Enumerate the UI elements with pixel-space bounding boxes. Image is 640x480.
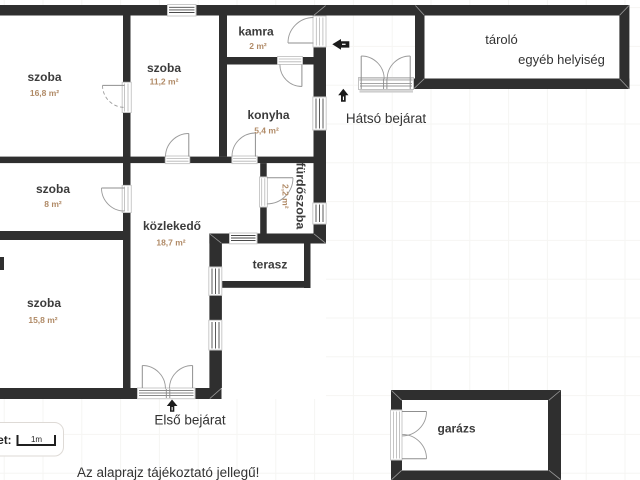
svg-text:szoba: szoba — [27, 70, 61, 84]
svg-text:garázs: garázs — [437, 422, 475, 436]
svg-text:szoba: szoba — [36, 182, 70, 196]
svg-text:18,7 m²: 18,7 m² — [156, 238, 185, 248]
svg-text:15,8 m²: 15,8 m² — [28, 315, 57, 325]
svg-text:8 m²: 8 m² — [44, 199, 62, 209]
svg-text:5,4 m²: 5,4 m² — [254, 126, 279, 136]
svg-text:konyha: konyha — [247, 108, 289, 122]
svg-text:Hátsó bejárat: Hátsó bejárat — [346, 111, 427, 126]
svg-text:11,2 m²: 11,2 m² — [150, 77, 179, 87]
svg-text:1m: 1m — [31, 435, 42, 444]
svg-text:Első bejárat: Első bejárat — [154, 413, 226, 428]
svg-text:2,2 m²: 2,2 m² — [281, 184, 291, 209]
svg-text:Méret:: Méret: — [0, 435, 12, 447]
svg-text:tároló: tároló — [485, 32, 518, 47]
svg-text:szoba: szoba — [27, 296, 61, 310]
svg-text:Az alaprajz tájékoztató jelleg: Az alaprajz tájékoztató jellegű! — [77, 465, 259, 480]
svg-text:2 m²: 2 m² — [249, 41, 267, 51]
svg-text:fürdőszoba: fürdőszoba — [294, 163, 308, 230]
svg-text:szoba: szoba — [147, 61, 181, 75]
svg-text:közlekedő: közlekedő — [143, 219, 201, 233]
svg-text:terasz: terasz — [253, 258, 288, 272]
svg-text:egyéb helyiség: egyéb helyiség — [518, 52, 605, 67]
svg-text:16,8 m²: 16,8 m² — [30, 88, 59, 98]
svg-text:kamra: kamra — [238, 25, 274, 39]
